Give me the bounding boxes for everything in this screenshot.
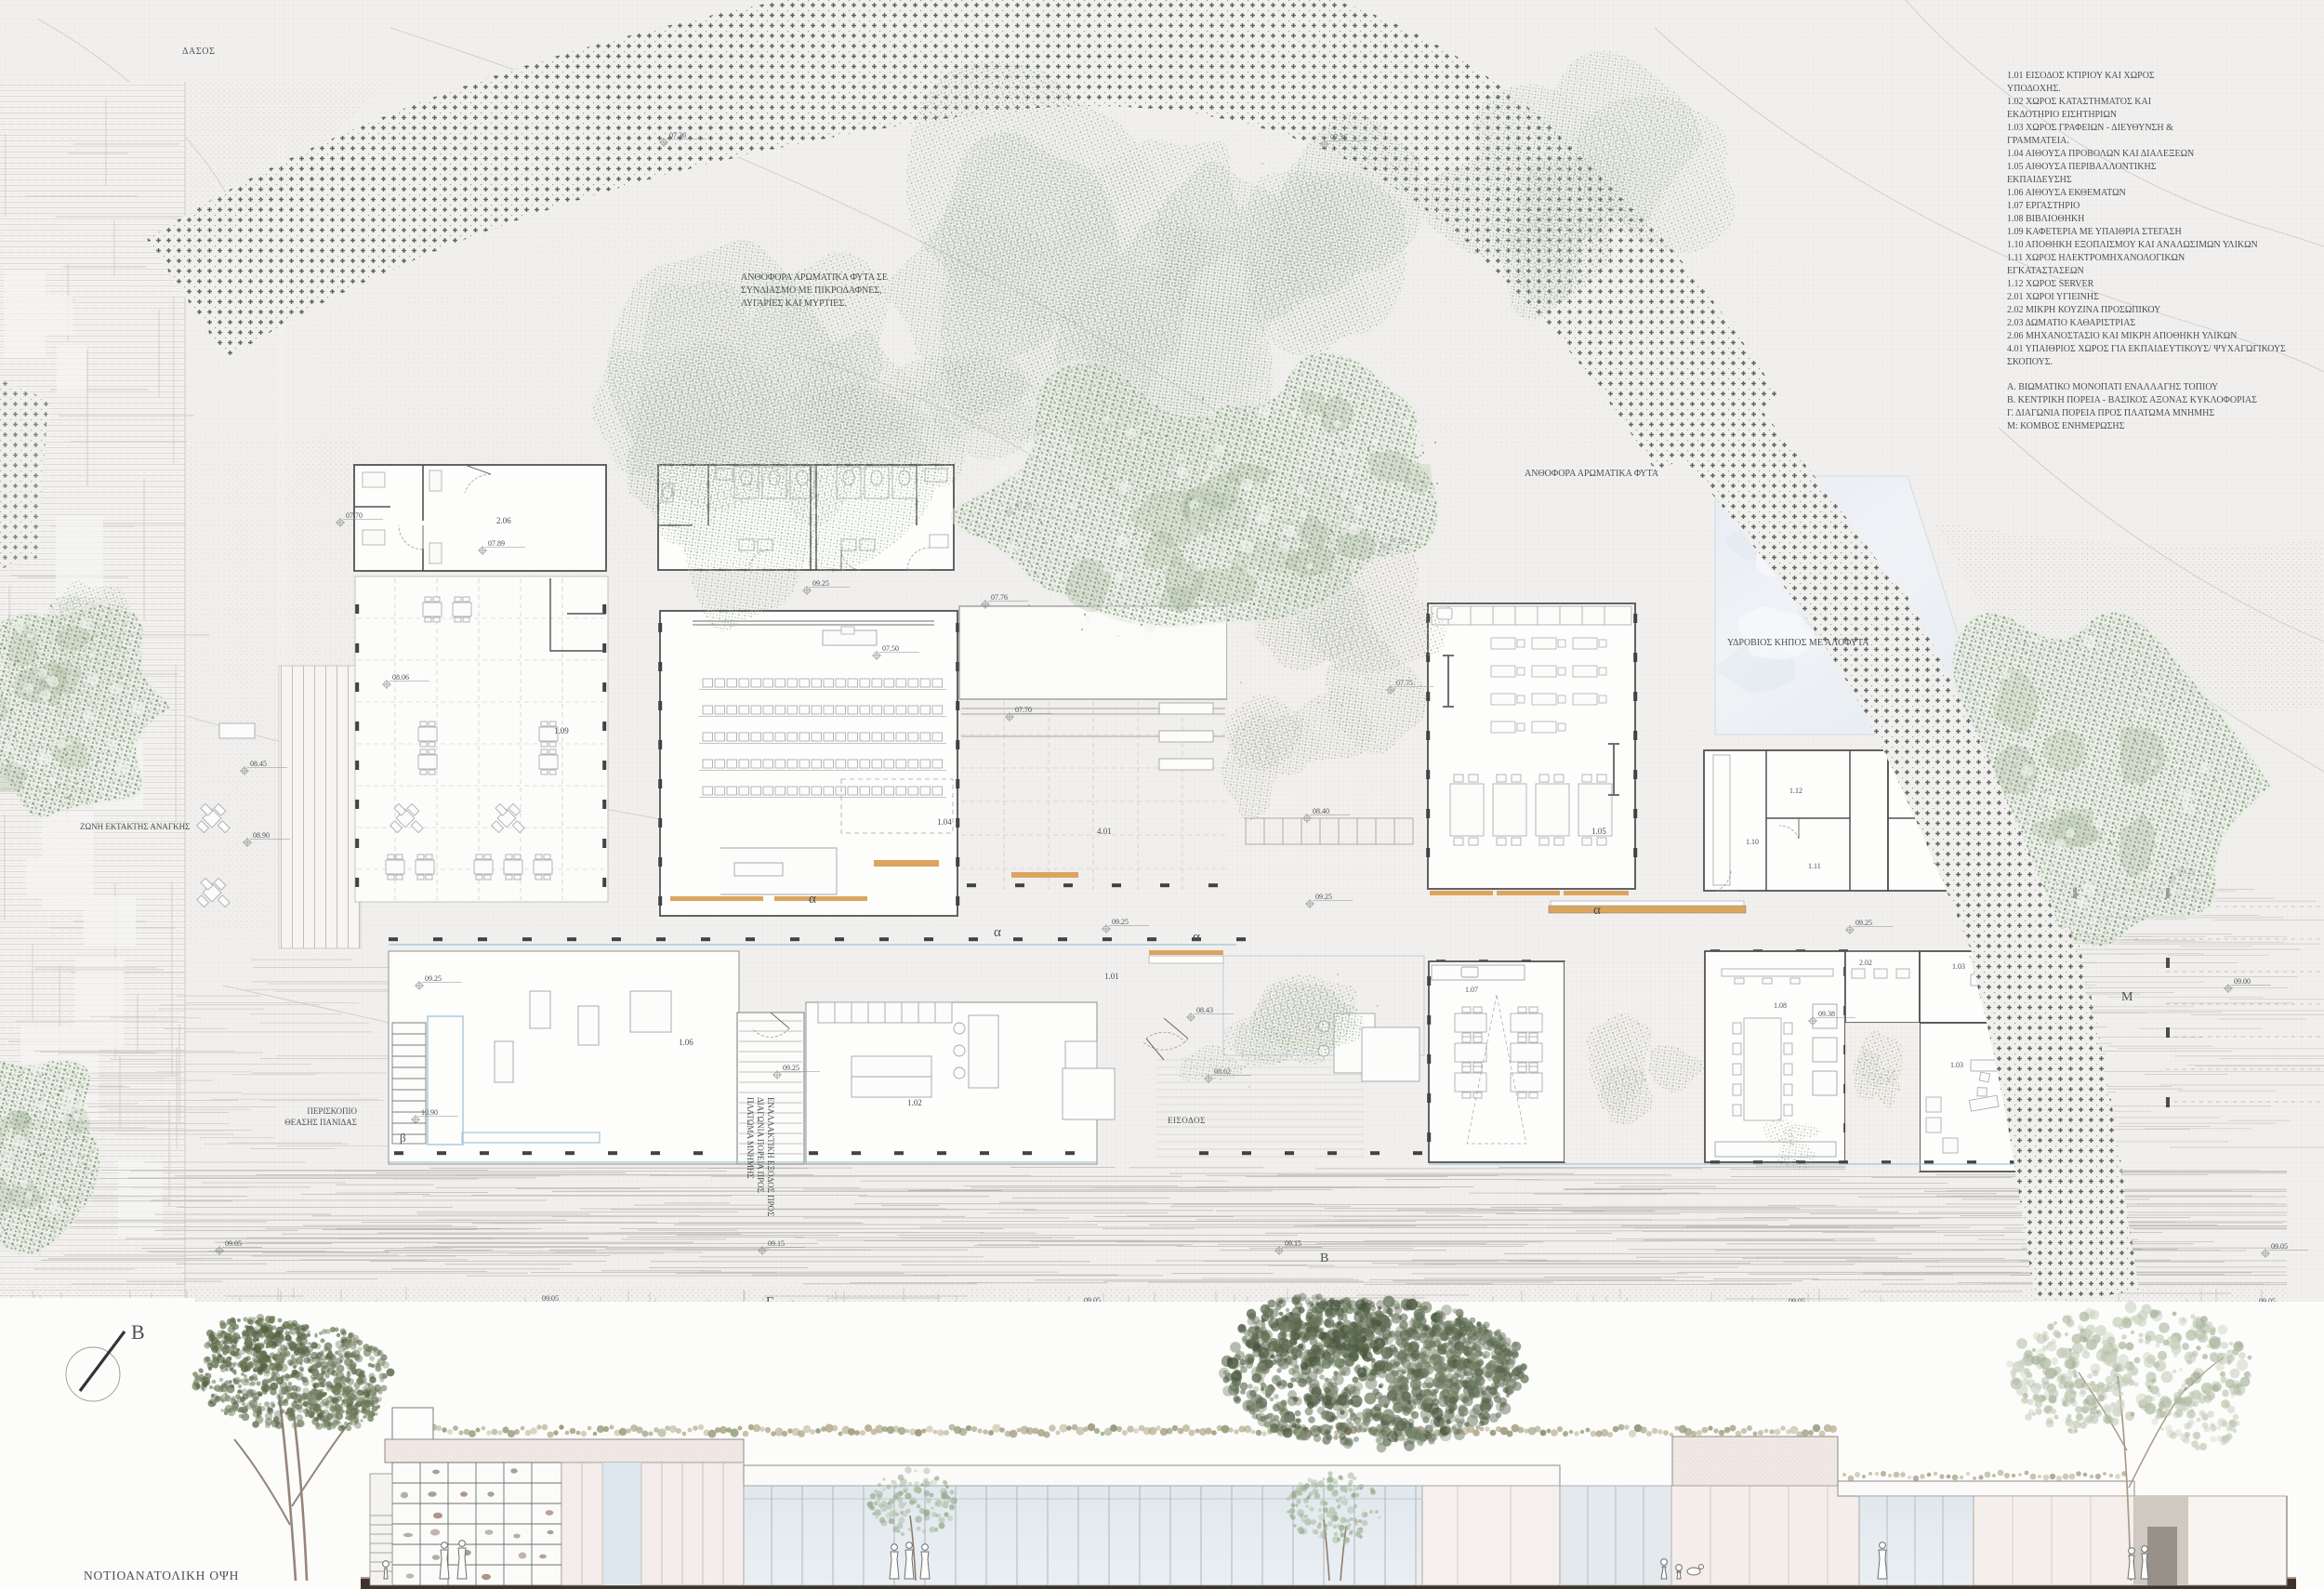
svg-text:ΣΚΟΠΟΥΣ.: ΣΚΟΠΟΥΣ. bbox=[2007, 357, 2053, 367]
svg-text:08.40: 08.40 bbox=[1313, 807, 1329, 815]
svg-text:1.12: 1.12 bbox=[1789, 787, 1802, 795]
svg-text:ΕΚΠΑΙΔΕΥΣΗΣ: ΕΚΠΑΙΔΕΥΣΗΣ bbox=[2007, 175, 2072, 185]
svg-text:1.04: 1.04 bbox=[937, 817, 952, 827]
svg-text:1.05: 1.05 bbox=[1591, 827, 1606, 836]
svg-text:1.03 ΧΩΡΟΣ ΓΡΑΦΕΙΩΝ - ΔΙΕΥΘΥΝΣ: 1.03 ΧΩΡΟΣ ΓΡΑΦΕΙΩΝ - ΔΙΕΥΘΥΝΣΗ & bbox=[2007, 123, 2173, 133]
svg-text:07.36: 07.36 bbox=[669, 131, 686, 139]
svg-text:ΕΓΚΑΤΑΣΤΑΣΕΩΝ: ΕΓΚΑΤΑΣΤΑΣΕΩΝ bbox=[2007, 266, 2084, 276]
svg-text:ΖΩΝΗ ΕΚΤΑΚΤΗΣ ΑΝΑΓΚΗΣ: ΖΩΝΗ ΕΚΤΑΚΤΗΣ ΑΝΑΓΚΗΣ bbox=[80, 822, 190, 831]
svg-text:1.06: 1.06 bbox=[679, 1038, 693, 1047]
svg-text:2.02: 2.02 bbox=[1859, 959, 1872, 967]
svg-text:ΑΝΘΟΦΟΡΑ ΑΡΩΜΑΤΙΚΑ ΦΥΤΑ ΣΕ: ΑΝΘΟΦΟΡΑ ΑΡΩΜΑΤΙΚΑ ΦΥΤΑ ΣΕ bbox=[741, 272, 888, 283]
svg-text:09.25: 09.25 bbox=[812, 579, 829, 588]
svg-text:07.76: 07.76 bbox=[991, 593, 1008, 602]
svg-text:Μ: ΚΟΜΒΟΣ ΕΝΗΜΕΡΩΣΗΣ: Μ: ΚΟΜΒΟΣ ΕΝΗΜΕΡΩΣΗΣ bbox=[2007, 421, 2125, 431]
svg-text:09.25: 09.25 bbox=[783, 1064, 799, 1072]
svg-text:1.02: 1.02 bbox=[907, 1098, 922, 1107]
svg-text:09.15: 09.15 bbox=[1285, 1239, 1301, 1248]
svg-text:09.05: 09.05 bbox=[2271, 1242, 2288, 1251]
svg-text:07.89: 07.89 bbox=[488, 539, 505, 548]
svg-text:α: α bbox=[994, 925, 1001, 940]
svg-text:ΠΛΑΤΩΜΑ ΜΝΗΜΗΣ: ΠΛΑΤΩΜΑ ΜΝΗΜΗΣ bbox=[746, 1097, 755, 1179]
svg-text:ΛΥΓΑΡΙΕΣ ΚΑΙ ΜΥΡΤΙΕΣ.: ΛΥΓΑΡΙΕΣ ΚΑΙ ΜΥΡΤΙΕΣ. bbox=[741, 298, 847, 309]
svg-text:ΕΝΑΛΛΑΚΤΙΚΗ ΕΞΟΔΟΣ ΠΡΟΣ: ΕΝΑΛΛΑΚΤΙΚΗ ΕΞΟΔΟΣ ΠΡΟΣ bbox=[766, 1097, 775, 1216]
svg-text:1.02 ΧΩΡΟΣ ΚΑΤΑΣΤΗΜΑΤΟΣ ΚΑΙ: 1.02 ΧΩΡΟΣ ΚΑΤΑΣΤΗΜΑΤΟΣ ΚΑΙ bbox=[2007, 97, 2151, 107]
svg-text:ΑΝΘΟΦΟΡΑ ΑΡΩΜΑΤΙΚΑ ΦΥΤΑ: ΑΝΘΟΦΟΡΑ ΑΡΩΜΑΤΙΚΑ ΦΥΤΑ bbox=[1525, 469, 1659, 479]
svg-text:09.05: 09.05 bbox=[225, 1239, 242, 1248]
svg-text:1.08 ΒΙΒΛΙΟΘΗΚΗ: 1.08 ΒΙΒΛΙΟΘΗΚΗ bbox=[2007, 214, 2084, 224]
svg-text:ΝΟΤΙΟΑΝΑΤΟΛΙΚΗ ΟΨΗ: ΝΟΤΙΟΑΝΑΤΟΛΙΚΗ ΟΨΗ bbox=[84, 1569, 239, 1582]
svg-text:Μ: Μ bbox=[2121, 990, 2133, 1004]
svg-text:07.70: 07.70 bbox=[1015, 706, 1032, 714]
svg-text:B: B bbox=[131, 1320, 145, 1344]
svg-text:08.43: 08.43 bbox=[1196, 1006, 1213, 1014]
svg-text:ΘΕΑΣΗΣ ΠΑΝΙΔΑΣ: ΘΕΑΣΗΣ ΠΑΝΙΔΑΣ bbox=[284, 1118, 357, 1127]
svg-text:09.25: 09.25 bbox=[1855, 919, 1872, 927]
svg-text:α: α bbox=[809, 892, 816, 907]
svg-text:09.25: 09.25 bbox=[1112, 918, 1129, 926]
svg-text:10.90: 10.90 bbox=[421, 1108, 438, 1117]
svg-text:1.05 ΑΙΘΟΥΣΑ ΠΕΡΙΒΑΛΛΟΝΤΙΚΗΣ: 1.05 ΑΙΘΟΥΣΑ ΠΕΡΙΒΑΛΛΟΝΤΙΚΗΣ bbox=[2007, 162, 2157, 172]
svg-text:1.03: 1.03 bbox=[1952, 962, 1965, 971]
svg-text:Β. ΚΕΝΤΡΙΚΗ ΠΟΡΕΙΑ - ΒΑΣΙΚΟΣ Α: Β. ΚΕΝΤΡΙΚΗ ΠΟΡΕΙΑ - ΒΑΣΙΚΟΣ ΑΞΟΝΑΣ ΚΥΚΛ… bbox=[2007, 395, 2257, 405]
svg-text:4.01 ΥΠΑΙΘΡΙΟΣ ΧΩΡΟΣ ΓΙΑ ΕΚΠΑΙ: 4.01 ΥΠΑΙΘΡΙΟΣ ΧΩΡΟΣ ΓΙΑ ΕΚΠΑΙΔΕΥΤΙΚΟΥΣ/… bbox=[2007, 344, 2286, 354]
svg-text:Γ. ΔΙΑΓΩΝΙΑ ΠΟΡΕΙΑ ΠΡΟΣ ΠΛΑΤΩΜ: Γ. ΔΙΑΓΩΝΙΑ ΠΟΡΕΙΑ ΠΡΟΣ ΠΛΑΤΩΜΑ ΜΝΗΜΗΣ bbox=[2007, 408, 2214, 418]
svg-text:1.11 ΧΩΡΟΣ ΗΛΕΚΤΡΟΜΗΧΑΝΟΛΟΓΙΚΩ: 1.11 ΧΩΡΟΣ ΗΛΕΚΤΡΟΜΗΧΑΝΟΛΟΓΙΚΩΝ bbox=[2007, 253, 2185, 263]
svg-text:α: α bbox=[1193, 930, 1200, 945]
svg-text:1.09: 1.09 bbox=[554, 726, 569, 735]
svg-text:1.07: 1.07 bbox=[1465, 986, 1478, 994]
svg-text:07.50: 07.50 bbox=[882, 644, 899, 653]
svg-text:1.03: 1.03 bbox=[1950, 1061, 1963, 1069]
svg-text:1.01 ΕΙΣΟΔΟΣ ΚΤΙΡΙΟΥ ΚΑΙ ΧΩΡΟΣ: 1.01 ΕΙΣΟΔΟΣ ΚΤΙΡΙΟΥ ΚΑΙ ΧΩΡΟΣ bbox=[2007, 71, 2155, 81]
svg-text:ΥΔΡΟΒΙΟΣ ΚΗΠΟΣ ΜΕ ΑΛΟΦΥΤΑ: ΥΔΡΟΒΙΟΣ ΚΗΠΟΣ ΜΕ ΑΛΟΦΥΤΑ bbox=[1727, 638, 1869, 648]
svg-text:1.10: 1.10 bbox=[1746, 838, 1759, 846]
svg-text:08.90: 08.90 bbox=[253, 831, 270, 840]
svg-text:1.10 ΑΠΟΘΗΚΗ ΕΞΟΠΛΙΣΜΟΥ ΚΑΙ ΑΝ: 1.10 ΑΠΟΘΗΚΗ ΕΞΟΠΛΙΣΜΟΥ ΚΑΙ ΑΝΑΛΩΣΙΜΩΝ Υ… bbox=[2007, 240, 2258, 250]
svg-text:1.12 ΧΩΡΟΣ SERVER: 1.12 ΧΩΡΟΣ SERVER bbox=[2007, 279, 2094, 289]
svg-text:ΕΙΣΟΔΟΣ: ΕΙΣΟΔΟΣ bbox=[1168, 1116, 1206, 1125]
svg-text:1.09 ΚΑΦΕΤΕΡΙΑ ΜΕ ΥΠΑΙΘΡΙΑ ΣΤΕ: 1.09 ΚΑΦΕΤΕΡΙΑ ΜΕ ΥΠΑΙΘΡΙΑ ΣΤΕΓΑΣΗ bbox=[2007, 227, 2182, 237]
svg-text:09.05: 09.05 bbox=[542, 1294, 559, 1303]
svg-text:ΣΥΝΔΙΑΣΜΟ ΜΕ ΠΙΚΡΟΔΑΦΝΕΣ,: ΣΥΝΔΙΑΣΜΟ ΜΕ ΠΙΚΡΟΔΑΦΝΕΣ, bbox=[741, 285, 882, 296]
svg-text:2.02 ΜΙΚΡΗ ΚΟΥΖΙΝΑ ΠΡΟΣΩΠΙΚΟΥ: 2.02 ΜΙΚΡΗ ΚΟΥΖΙΝΑ ΠΡΟΣΩΠΙΚΟΥ bbox=[2007, 305, 2160, 315]
svg-text:ΓΡΑΜΜΑΤΕΙΑ.: ΓΡΑΜΜΑΤΕΙΑ. bbox=[2007, 136, 2069, 146]
svg-text:4.01: 4.01 bbox=[1097, 827, 1112, 836]
svg-text:2.03 ΔΩΜΑΤΙΟ ΚΑΘΑΡΙΣΤΡΙΑΣ: 2.03 ΔΩΜΑΤΙΟ ΚΑΘΑΡΙΣΤΡΙΑΣ bbox=[2007, 318, 2135, 328]
svg-text:ΠΕΡΙΣΚΟΠΙΟ: ΠΕΡΙΣΚΟΠΙΟ bbox=[307, 1106, 357, 1116]
svg-text:1.06 ΑΙΘΟΥΣΑ ΕΚΘΕΜΑΤΩΝ: 1.06 ΑΙΘΟΥΣΑ ΕΚΘΕΜΑΤΩΝ bbox=[2007, 188, 2126, 198]
svg-text:ΔΑΣΟΣ: ΔΑΣΟΣ bbox=[182, 46, 216, 57]
svg-text:08.06: 08.06 bbox=[392, 673, 409, 682]
svg-text:ΔΙΑΓΩΝΙΑ ΠΟΡΕΙΑ ΠΡΟΣ: ΔΙΑΓΩΝΙΑ ΠΟΡΕΙΑ ΠΡΟΣ bbox=[756, 1097, 765, 1193]
svg-text:2.06 ΜΗΧΑΝΟΣΤΑΣΙΟ ΚΑΙ ΜΙΚΡΗ ΑΠ: 2.06 ΜΗΧΑΝΟΣΤΑΣΙΟ ΚΑΙ ΜΙΚΡΗ ΑΠΟΘΗΚΗ ΥΛΙΚ… bbox=[2007, 331, 2237, 341]
svg-text:Α. ΒΙΩΜΑΤΙΚΟ ΜΟΝΟΠΑΤΙ ΕΝΑΛΛΑΓΗ: Α. ΒΙΩΜΑΤΙΚΟ ΜΟΝΟΠΑΤΙ ΕΝΑΛΛΑΓΗΣ ΤΟΠΙΟΥ bbox=[2007, 382, 2218, 392]
svg-text:08.45: 08.45 bbox=[250, 760, 267, 768]
svg-text:1.08: 1.08 bbox=[1774, 1001, 1787, 1010]
svg-text:09.25: 09.25 bbox=[1315, 893, 1332, 901]
svg-text:09.38: 09.38 bbox=[1818, 1010, 1835, 1018]
svg-text:2.06: 2.06 bbox=[496, 516, 511, 525]
svg-text:ΥΠΟΔΟΧΗΣ.: ΥΠΟΔΟΧΗΣ. bbox=[2007, 84, 2061, 94]
svg-text:α: α bbox=[1593, 903, 1601, 918]
svg-text:1.01: 1.01 bbox=[1104, 972, 1119, 981]
svg-text:2.01 ΧΩΡΟΙ ΥΓΙΕΙΝΗΣ: 2.01 ΧΩΡΟΙ ΥΓΙΕΙΝΗΣ bbox=[2007, 292, 2099, 302]
svg-text:β: β bbox=[400, 1131, 406, 1145]
svg-text:ΕΚΔΟΤΗΡΙΟ ΕΙΣΗΤΗΡΙΩΝ: ΕΚΔΟΤΗΡΙΟ ΕΙΣΗΤΗΡΙΩΝ bbox=[2007, 110, 2117, 120]
svg-text:07.70: 07.70 bbox=[346, 511, 363, 520]
svg-text:1.07 ΕΡΓΑΣΤΗΡΙΟ: 1.07 ΕΡΓΑΣΤΗΡΙΟ bbox=[2007, 201, 2080, 211]
svg-text:09.00: 09.00 bbox=[2234, 977, 2251, 986]
svg-text:09.15: 09.15 bbox=[768, 1239, 785, 1248]
svg-text:1.04 ΑΙΘΟΥΣΑ ΠΡΟΒΟΛΩΝ ΚΑΙ ΔΙΑΛ: 1.04 ΑΙΘΟΥΣΑ ΠΡΟΒΟΛΩΝ ΚΑΙ ΔΙΑΛΕΞΕΩΝ bbox=[2007, 149, 2194, 159]
svg-text:1.11: 1.11 bbox=[1808, 862, 1821, 870]
svg-text:09.25: 09.25 bbox=[425, 974, 442, 983]
svg-text:Β: Β bbox=[1320, 1251, 1328, 1265]
